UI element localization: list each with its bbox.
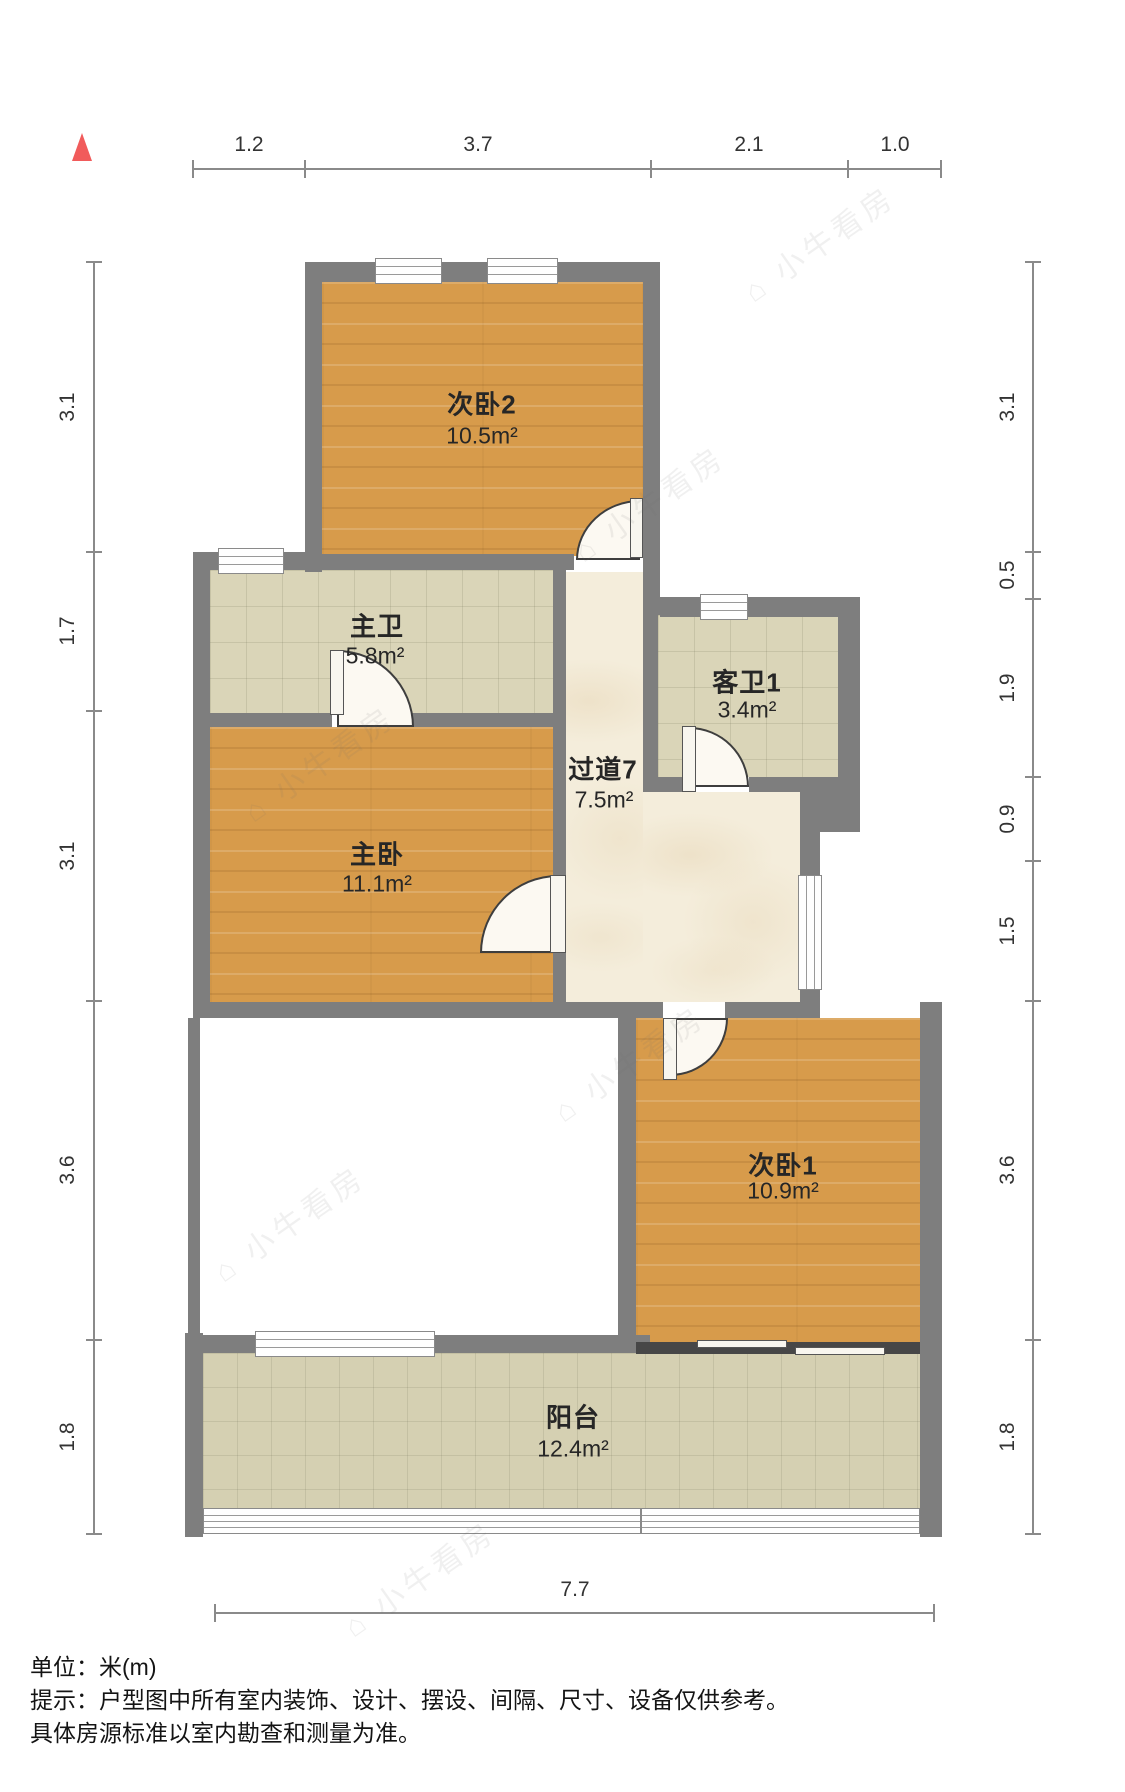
- dim-right-6: 1.8: [996, 1422, 1020, 1451]
- room-label-bedroom2: 次卧2: [447, 385, 516, 422]
- dim-tick: [86, 1533, 102, 1535]
- dim-right-1: 0.5: [996, 560, 1020, 589]
- room-area-bedroom2: 10.5m²: [446, 423, 518, 450]
- watermark: ⌂ 小牛看房: [203, 1153, 373, 1290]
- wall: [305, 262, 660, 282]
- dim-top-0: 1.2: [234, 133, 263, 157]
- dim-tick: [1025, 1533, 1041, 1535]
- dim-tick: [1025, 551, 1041, 553]
- dim-tick: [86, 710, 102, 712]
- dim-tick: [1025, 1000, 1041, 1002]
- dim-top-3: 1.0: [880, 133, 909, 157]
- dim-tick: [86, 261, 102, 263]
- balcony-railing-divider: [640, 1508, 642, 1534]
- wall: [193, 552, 210, 1018]
- wall: [305, 262, 322, 572]
- dim-tick: [1025, 598, 1041, 600]
- door-leaf-master-bath: [330, 650, 344, 715]
- right-dimension-line: [1032, 262, 1034, 1535]
- room-area-hallway: 7.5m²: [575, 787, 634, 814]
- watermark: ⌂ 小牛看房: [733, 173, 903, 310]
- dim-right-0: 3.1: [996, 392, 1020, 421]
- wall: [193, 713, 332, 727]
- room-area-master-bedroom: 11.1m²: [342, 871, 412, 898]
- room-area-master-bath: 5.8m²: [346, 643, 405, 670]
- dim-left-1: 1.7: [56, 616, 80, 645]
- wall: [322, 554, 574, 570]
- wall: [553, 953, 566, 1002]
- wall: [920, 1002, 942, 1537]
- wall: [643, 777, 682, 792]
- floorplan-canvas: 次卧2 10.5m² 主卫 5.8m² 客卫1 3.4m² 过道7 7.5m² …: [0, 0, 1125, 1792]
- room-area-balcony: 12.4m²: [537, 1436, 609, 1463]
- dim-tick: [1025, 261, 1041, 263]
- dim-left-3: 3.6: [56, 1155, 80, 1184]
- room-label-balcony: 阳台: [546, 1398, 600, 1435]
- dim-top-2: 2.1: [734, 133, 763, 157]
- footer-tip-line1: 提示：户型图中所有室内装饰、设计、摆设、间隔、尺寸、设备仅供参考。: [30, 1681, 789, 1715]
- wall: [643, 262, 660, 615]
- dim-tick: [940, 160, 942, 178]
- dim-bottom-0: 7.7: [560, 1578, 589, 1602]
- dim-tick: [650, 160, 652, 178]
- wall: [185, 1333, 203, 1537]
- dim-tick: [304, 160, 306, 178]
- room-hallway-floor-lower: [643, 792, 800, 1002]
- dim-tick: [86, 1000, 102, 1002]
- wall: [193, 1002, 663, 1018]
- room-area-guest-bath: 3.4m²: [718, 697, 777, 724]
- sliding-door-panel: [697, 1340, 787, 1348]
- dim-top-1: 3.7: [463, 133, 492, 157]
- footer-tip-line2: 具体房源标准以室内勘查和测量为准。: [30, 1714, 421, 1748]
- dim-tick: [847, 160, 849, 178]
- dim-left-2: 3.1: [56, 841, 80, 870]
- wall: [412, 713, 566, 727]
- dim-tick: [933, 1604, 935, 1622]
- door-leaf-guest-bath: [682, 726, 696, 792]
- wall: [660, 597, 860, 617]
- room-label-master-bedroom: 主卧: [350, 835, 404, 872]
- dim-tick: [1025, 860, 1041, 862]
- window: [700, 594, 748, 620]
- window: [375, 258, 442, 284]
- dim-right-5: 3.6: [996, 1155, 1020, 1184]
- dim-tick: [86, 1339, 102, 1341]
- window: [218, 548, 284, 574]
- north-arrow-icon: [72, 133, 92, 161]
- wall: [749, 777, 860, 792]
- sliding-door-panel: [795, 1347, 885, 1355]
- window: [487, 258, 558, 284]
- dim-tick: [1025, 1339, 1041, 1341]
- bottom-dimension-line: [215, 1612, 935, 1614]
- dim-left-4: 1.8: [56, 1422, 80, 1451]
- dim-left-0: 3.1: [56, 392, 80, 421]
- dim-tick: [1025, 776, 1041, 778]
- room-area-bedroom1: 10.9m²: [747, 1178, 819, 1205]
- room-label-hallway: 过道7: [568, 750, 637, 787]
- wall: [800, 792, 860, 832]
- dim-right-2: 1.9: [996, 673, 1020, 702]
- wall: [800, 832, 820, 877]
- door-leaf-master-bedroom: [550, 875, 566, 953]
- room-label-master-bath: 主卫: [350, 607, 404, 644]
- dim-tick: [192, 160, 194, 178]
- room-label-guest-bath: 客卫1: [712, 663, 781, 700]
- footer-unit-label: 单位：米(m): [30, 1648, 156, 1682]
- wall: [800, 988, 820, 1002]
- balcony-railing-window: [203, 1508, 920, 1534]
- dim-tick: [214, 1604, 216, 1622]
- dim-tick: [86, 551, 102, 553]
- wall: [725, 1002, 820, 1018]
- wall: [643, 599, 658, 792]
- window: [255, 1331, 435, 1357]
- wall: [188, 1018, 200, 1335]
- dim-right-3: 0.9: [996, 804, 1020, 833]
- window: [798, 875, 822, 990]
- dim-right-4: 1.5: [996, 916, 1020, 945]
- left-dimension-line: [93, 262, 95, 1535]
- wall: [553, 570, 566, 875]
